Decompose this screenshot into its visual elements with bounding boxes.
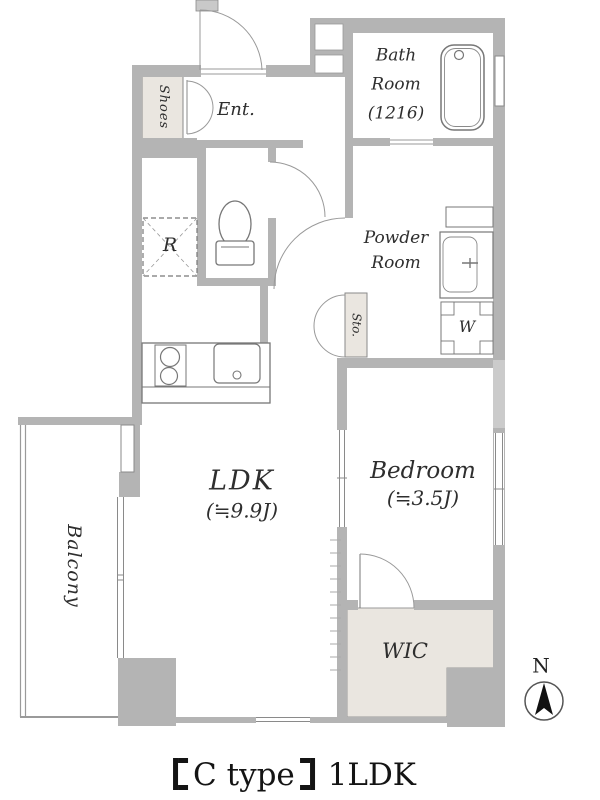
balcony-sliding-door <box>117 497 124 658</box>
wall-bedroom-west-a <box>337 358 347 430</box>
entry-door-arc <box>200 10 262 70</box>
compass-icon <box>525 682 563 720</box>
bath-window <box>495 56 504 106</box>
washer-label: W <box>459 317 475 337</box>
storage-label: Sto. <box>349 313 364 337</box>
powder-room-label: Powder Room <box>364 226 429 276</box>
bath-door-opening <box>390 138 433 146</box>
wall-under-shoes <box>132 138 197 158</box>
wall-ldk-west-block <box>119 472 140 497</box>
wall-right-light-segment <box>493 360 505 428</box>
washbasin-icon <box>440 207 493 298</box>
wall-bath-top <box>345 18 505 33</box>
bedroom-label: Bedroom (≒3.5J) <box>370 457 476 511</box>
entrance-label: Ent. <box>217 99 255 122</box>
entry-opening <box>201 65 266 77</box>
wic-label: WIC <box>382 638 428 664</box>
floorplan-svg <box>0 0 600 800</box>
wall-bath-west <box>345 33 353 148</box>
bedroom-sliding-door <box>337 430 347 527</box>
caption-close-bracket-icon <box>298 758 315 790</box>
wall-bottom <box>176 717 505 723</box>
wall-toilet-left <box>197 140 206 286</box>
compass-north-label: N <box>532 654 550 679</box>
wall-bedroom-west-b <box>337 527 347 717</box>
wall-right-mid <box>493 145 505 360</box>
floorplan-page: Bath Room (1216) Powder Room Ent. Shoes … <box>0 0 600 800</box>
toilet-icon <box>216 201 254 265</box>
shoes-door-arc-bottom <box>187 108 213 134</box>
entry-door-leaf-plate <box>196 0 218 11</box>
storage-door-arc-bottom <box>314 326 345 357</box>
wall-wic-top-a <box>347 600 358 610</box>
wall-toilet-top <box>197 140 303 148</box>
ldk-label: LDK (≒9.9J) <box>206 465 278 524</box>
storage-door-arc-top <box>314 295 345 326</box>
pipe-space-box-b <box>315 55 343 73</box>
caption-type-name: C type <box>193 757 295 793</box>
fixtures <box>142 45 493 403</box>
ldk-bay-window <box>121 425 134 472</box>
plan-caption: C type 1LDK <box>170 757 416 793</box>
caption-open-bracket-icon <box>173 758 190 790</box>
refrigerator-label: R <box>163 234 177 258</box>
wall-bedroom-top <box>347 358 505 368</box>
pipe-space-box-a <box>315 24 343 50</box>
caption-layout-type: 1LDK <box>328 757 416 793</box>
bottom-window <box>256 715 310 724</box>
kitchen-counter <box>142 343 270 403</box>
shoes-label: Shoes <box>155 85 171 129</box>
wall-left-column <box>132 65 142 425</box>
wall-pillar-bottom-left <box>118 658 176 726</box>
wall-balcony-top <box>18 417 137 425</box>
bath-room-label: Bath Room (1216) <box>368 42 425 129</box>
shoes-door-arc-top <box>187 81 213 108</box>
powder-door-arc <box>274 218 345 289</box>
wic-door-arc <box>360 554 414 608</box>
wall-toilet-bottom <box>197 278 276 286</box>
wall-corridor-ldk <box>260 286 268 343</box>
wall-bay-edge <box>134 425 140 472</box>
wall-toilet-right-a <box>268 140 276 162</box>
toilet-door-arc <box>270 162 325 217</box>
wall-wic-top-b <box>414 600 505 610</box>
bathtub-icon <box>441 45 484 130</box>
wall-powder-west <box>345 146 353 218</box>
balcony-label: Balcony <box>61 524 85 607</box>
